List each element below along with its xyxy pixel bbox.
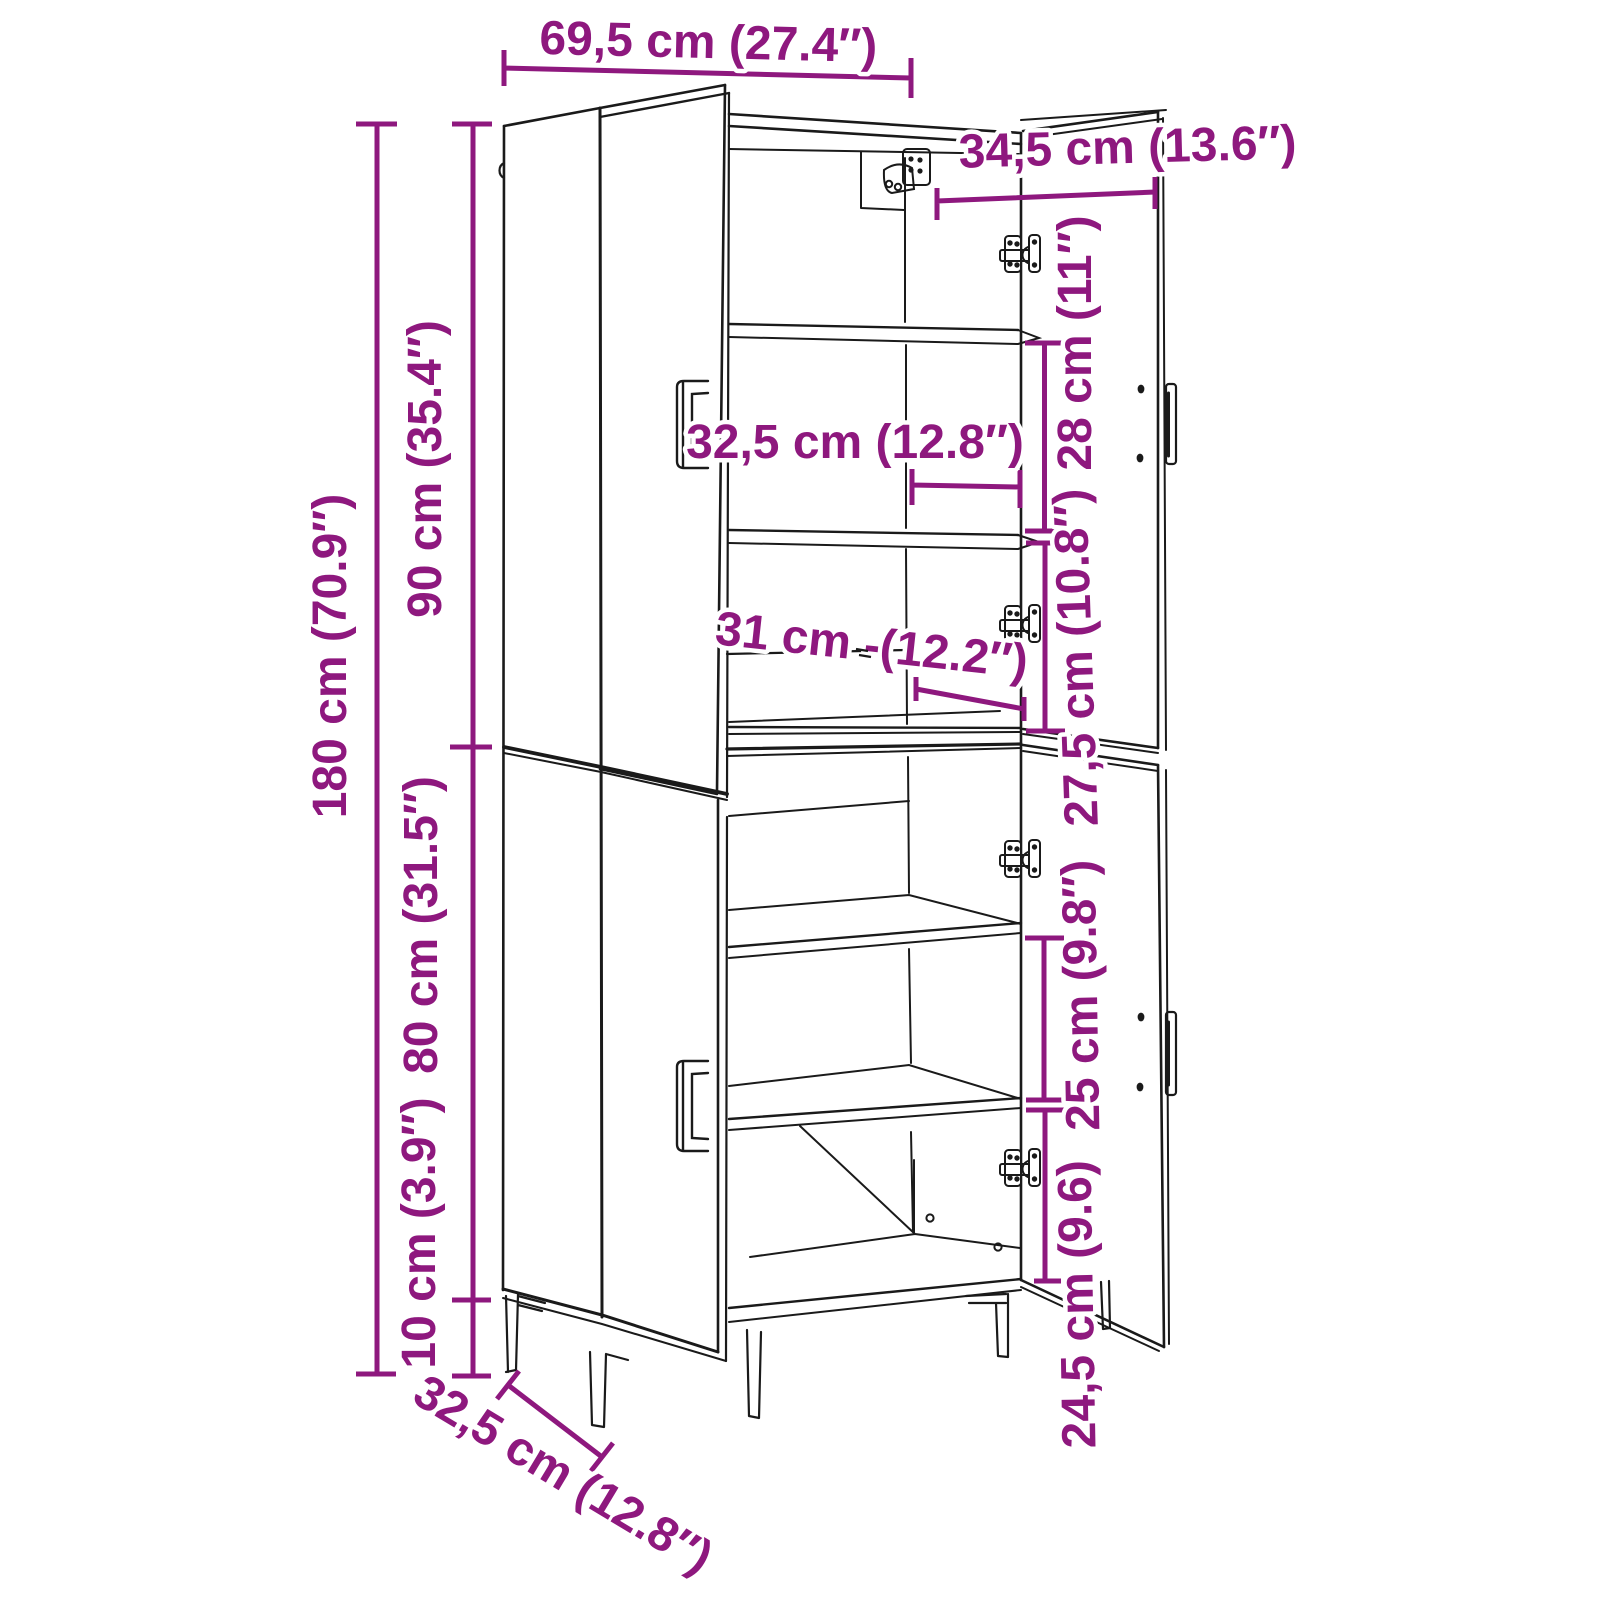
svg-text:10 cm (3.9″): 10 cm (3.9″) (393, 1097, 446, 1368)
svg-text:80 cm (31.5″): 80 cm (31.5″) (395, 776, 448, 1074)
svg-text:90 cm (35.4″): 90 cm (35.4″) (399, 320, 452, 618)
svg-text:34,5 cm (13.6″): 34,5 cm (13.6″) (958, 116, 1297, 178)
svg-text:28 cm (11″): 28 cm (11″) (1049, 215, 1102, 470)
svg-text:180 cm (70.9″): 180 cm (70.9″) (304, 494, 357, 819)
svg-text:24,5 cm (9.6): 24,5 cm (9.6) (1048, 1160, 1106, 1449)
svg-text:25 cm (9.8″): 25 cm (9.8″) (1053, 859, 1111, 1131)
svg-text:32,5 cm (12.8″): 32,5 cm (12.8″) (686, 416, 1024, 469)
svg-text:69,5 cm (27.4″): 69,5 cm (27.4″) (539, 12, 878, 73)
